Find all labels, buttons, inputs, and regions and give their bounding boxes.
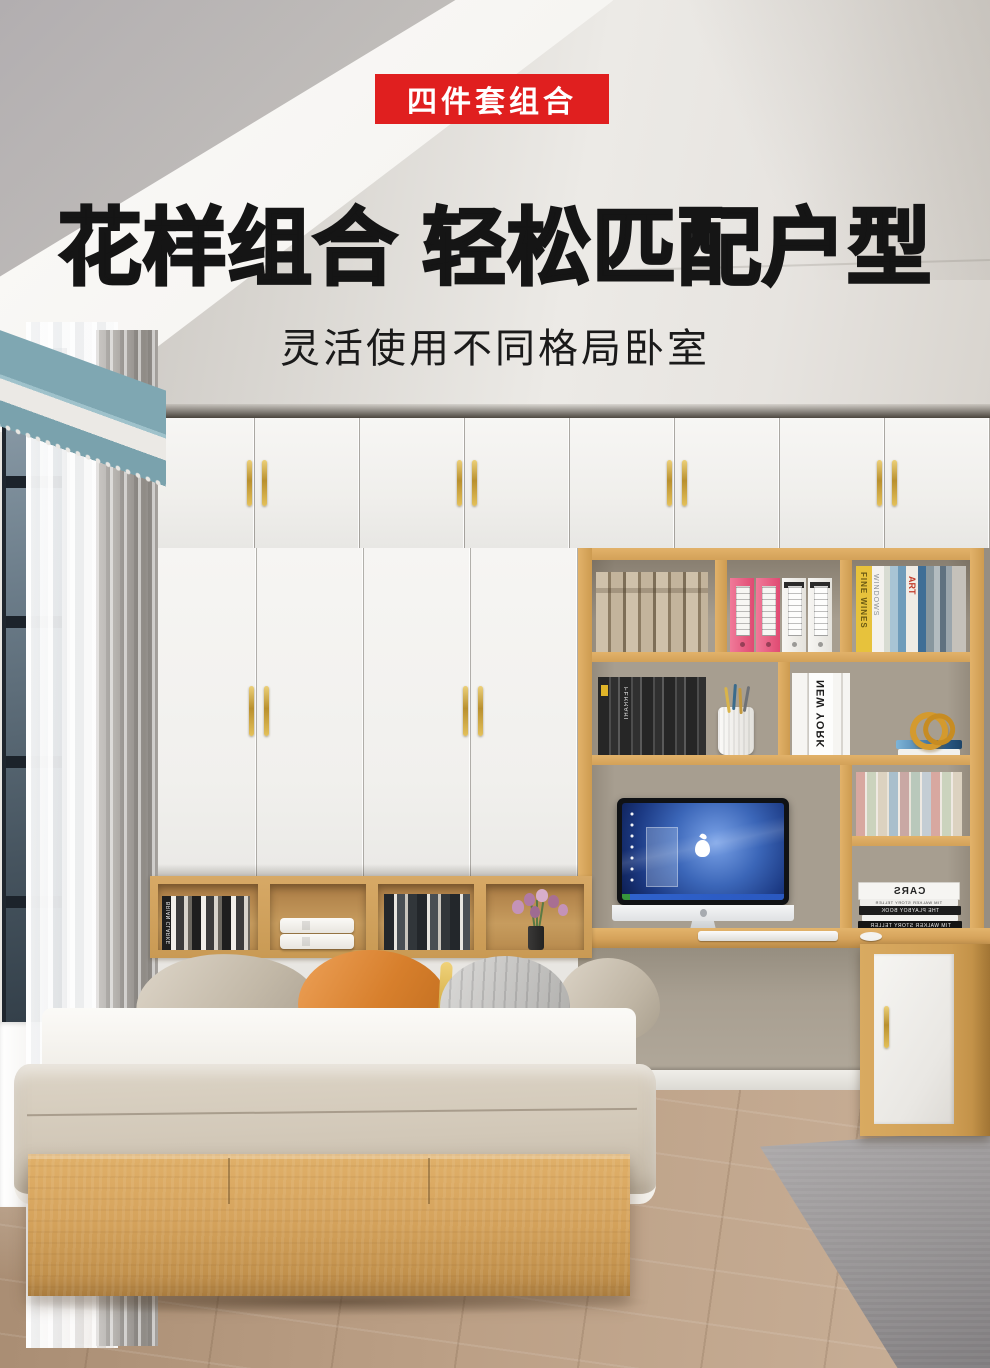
cabinet-handle — [262, 460, 267, 506]
binder-label — [762, 586, 776, 636]
imac-screen — [617, 798, 789, 905]
headboard-books — [384, 894, 470, 950]
binder-label — [814, 586, 828, 636]
wall-sliver — [984, 548, 990, 930]
shelf-divider — [778, 662, 790, 755]
book-spine-art: ART — [907, 576, 917, 595]
tulip-bloom — [524, 893, 535, 906]
shelf-frame-top — [578, 548, 990, 560]
taskbar — [622, 894, 784, 900]
desk-cabinet-handle — [884, 1006, 889, 1048]
book-playboy: THE PLAYBOY BOOK — [859, 906, 961, 915]
book-spine-brian-clarke: BRIAN CLARKE — [164, 898, 173, 948]
cabinet-handle — [457, 460, 462, 506]
book-spine-new-york: NEW YORK — [808, 673, 833, 755]
book-spine-fine-wines: FINE WINES — [859, 572, 868, 629]
white-books: NEW YORK — [792, 673, 850, 755]
tulip-bloom — [512, 900, 524, 914]
shelf-board — [852, 836, 970, 846]
apple-logo-icon — [695, 840, 710, 857]
book-spine-ferrari: FERRARI — [624, 687, 630, 720]
cabinet-handle — [682, 460, 687, 506]
cabinet-handle — [892, 460, 897, 506]
beige-books — [596, 572, 708, 652]
pastel-books — [856, 772, 962, 836]
mouse — [860, 932, 882, 941]
imac-wallpaper — [622, 803, 784, 900]
book-spine-windows: WINDOWS — [872, 574, 879, 616]
wardrobe-doors — [150, 548, 578, 878]
product-banner: FINE WINES WINDOWS ART FERRARI NEW YORK — [0, 0, 990, 1368]
desktop-window — [646, 827, 678, 887]
wardrobe-handle — [463, 686, 468, 736]
headboard-cell-books: BRIAN CLARKE — [158, 884, 258, 950]
desktop-icons — [629, 810, 639, 884]
bookshelf-desk-unit: FINE WINES WINDOWS ART FERRARI NEW YORK — [578, 548, 990, 930]
headboard-cell-towels — [270, 884, 366, 950]
tulip-bloom — [536, 889, 548, 902]
imac-chin — [612, 905, 794, 921]
shelf-divider — [840, 560, 852, 652]
shelf-divider — [715, 560, 727, 652]
binder-pink — [756, 578, 780, 652]
keyboard — [698, 931, 838, 941]
drawer-seam — [228, 1158, 230, 1204]
tulip-bloom — [530, 906, 540, 918]
imac-computer — [612, 798, 794, 928]
horizontal-book-stack: CARS TIM WALKER STORY TELLER THE PLAYBOY… — [858, 882, 962, 930]
book-tag — [601, 685, 608, 696]
binder-label — [788, 586, 802, 636]
platform-bed — [8, 944, 663, 1324]
cabinet-handle — [472, 460, 477, 506]
binder-group — [730, 576, 836, 652]
promo-badge: 四件套组合 — [375, 74, 609, 124]
main-title: 花样组合 轻松匹配户型 — [0, 202, 990, 294]
binder-white — [808, 578, 832, 652]
pen-holder — [718, 707, 754, 755]
cabinet-handle — [667, 460, 672, 506]
book-cars: CARS — [858, 882, 960, 900]
tulip-bloom — [548, 895, 559, 908]
tulip-bloom — [558, 904, 568, 916]
shelf-board — [592, 652, 970, 662]
headboard-cell-books — [378, 884, 474, 950]
colorful-books: FINE WINES WINDOWS ART — [856, 566, 966, 652]
binder-pink — [730, 578, 754, 652]
shelf-board — [592, 755, 970, 765]
headboard-books: BRIAN CLARKE — [162, 896, 250, 950]
folded-towel — [280, 918, 354, 933]
shelf-frame-left — [578, 548, 592, 930]
desk-cabinet — [860, 944, 990, 1136]
text-overlay: 四件套组合 花样组合 轻松匹配户型 灵活使用不同格局卧室 — [0, 0, 990, 440]
wardrobe-handle — [478, 686, 483, 736]
wardrobe-handle — [264, 686, 269, 736]
binder-label — [736, 586, 750, 636]
subtitle: 灵活使用不同格局卧室 — [0, 316, 990, 374]
shelf-frame-right — [970, 548, 984, 930]
headboard-cell-flowers — [486, 884, 584, 950]
book-tim-walker: TIM WALKER STORY TELLER — [860, 899, 958, 906]
wardrobe-handle — [249, 686, 254, 736]
shelf-divider — [840, 765, 852, 930]
cabinet-handle — [247, 460, 252, 506]
black-books: FERRARI — [598, 677, 706, 755]
cabinet-handle — [877, 460, 882, 506]
bed-wood-base — [28, 1154, 630, 1296]
drawer-seam — [428, 1158, 430, 1204]
binder-white — [782, 578, 806, 652]
